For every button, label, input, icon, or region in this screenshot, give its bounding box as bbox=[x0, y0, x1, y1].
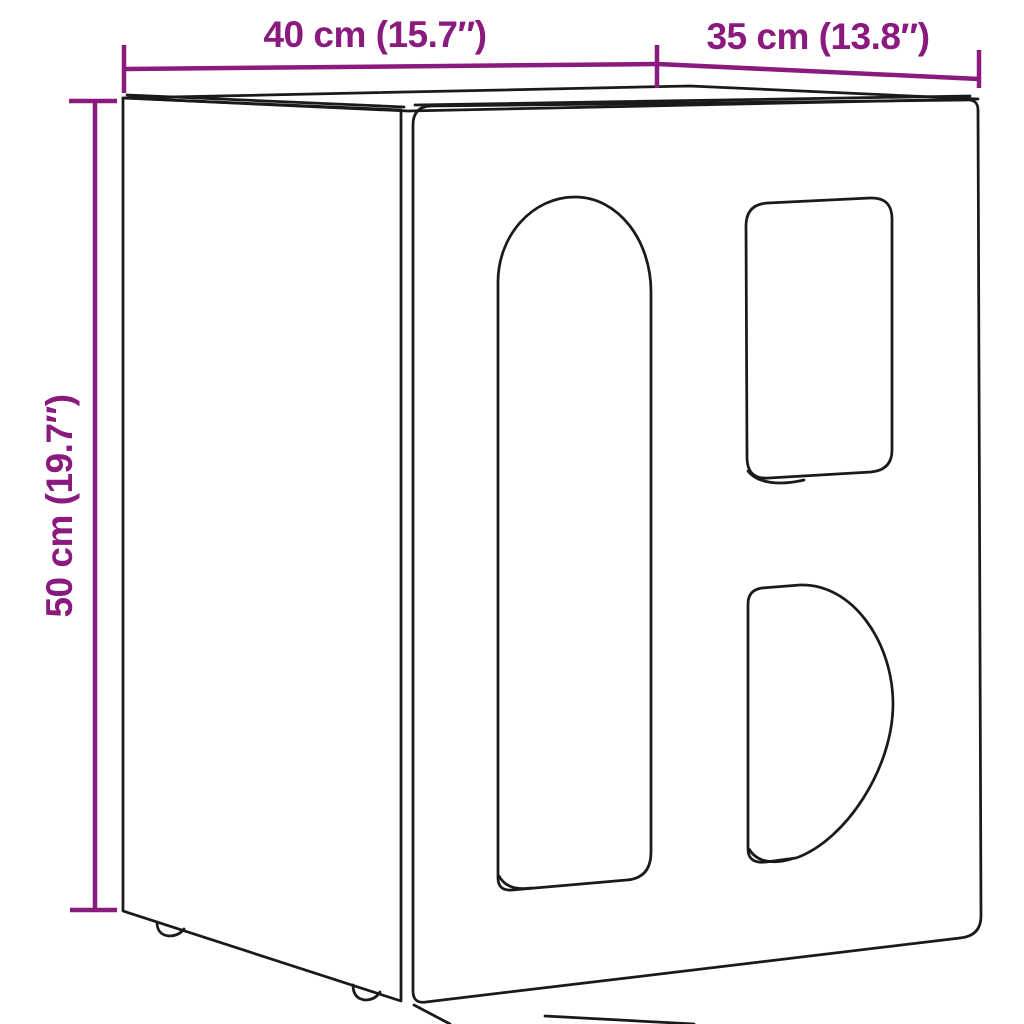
depth-dimension-label: 35 cm (13.8″) bbox=[706, 16, 929, 57]
dimension-diagram: 40 cm (15.7″) 35 cm (13.8″) 50 cm (19.7″… bbox=[0, 0, 1024, 1024]
depth-dimension-line bbox=[657, 64, 979, 79]
foot-front-edge-line bbox=[414, 1005, 450, 1024]
left-side-panel bbox=[123, 98, 401, 1001]
dimension-lines bbox=[69, 45, 979, 910]
height-dimension-label: 50 cm (19.7″) bbox=[39, 394, 80, 617]
base-bottom-line bbox=[545, 1016, 694, 1024]
diagram-svg: 40 cm (15.7″) 35 cm (13.8″) 50 cm (19.7″… bbox=[0, 0, 1024, 1024]
half-circle-cutout bbox=[748, 585, 893, 862]
arch-cutout bbox=[498, 197, 651, 890]
width-dimension-line bbox=[124, 64, 657, 69]
furniture-line-drawing bbox=[123, 86, 981, 1024]
width-dimension-label: 40 cm (15.7″) bbox=[263, 14, 486, 55]
rounded-rect-cutout bbox=[746, 198, 892, 478]
arch-cutout-thickness bbox=[499, 876, 532, 889]
